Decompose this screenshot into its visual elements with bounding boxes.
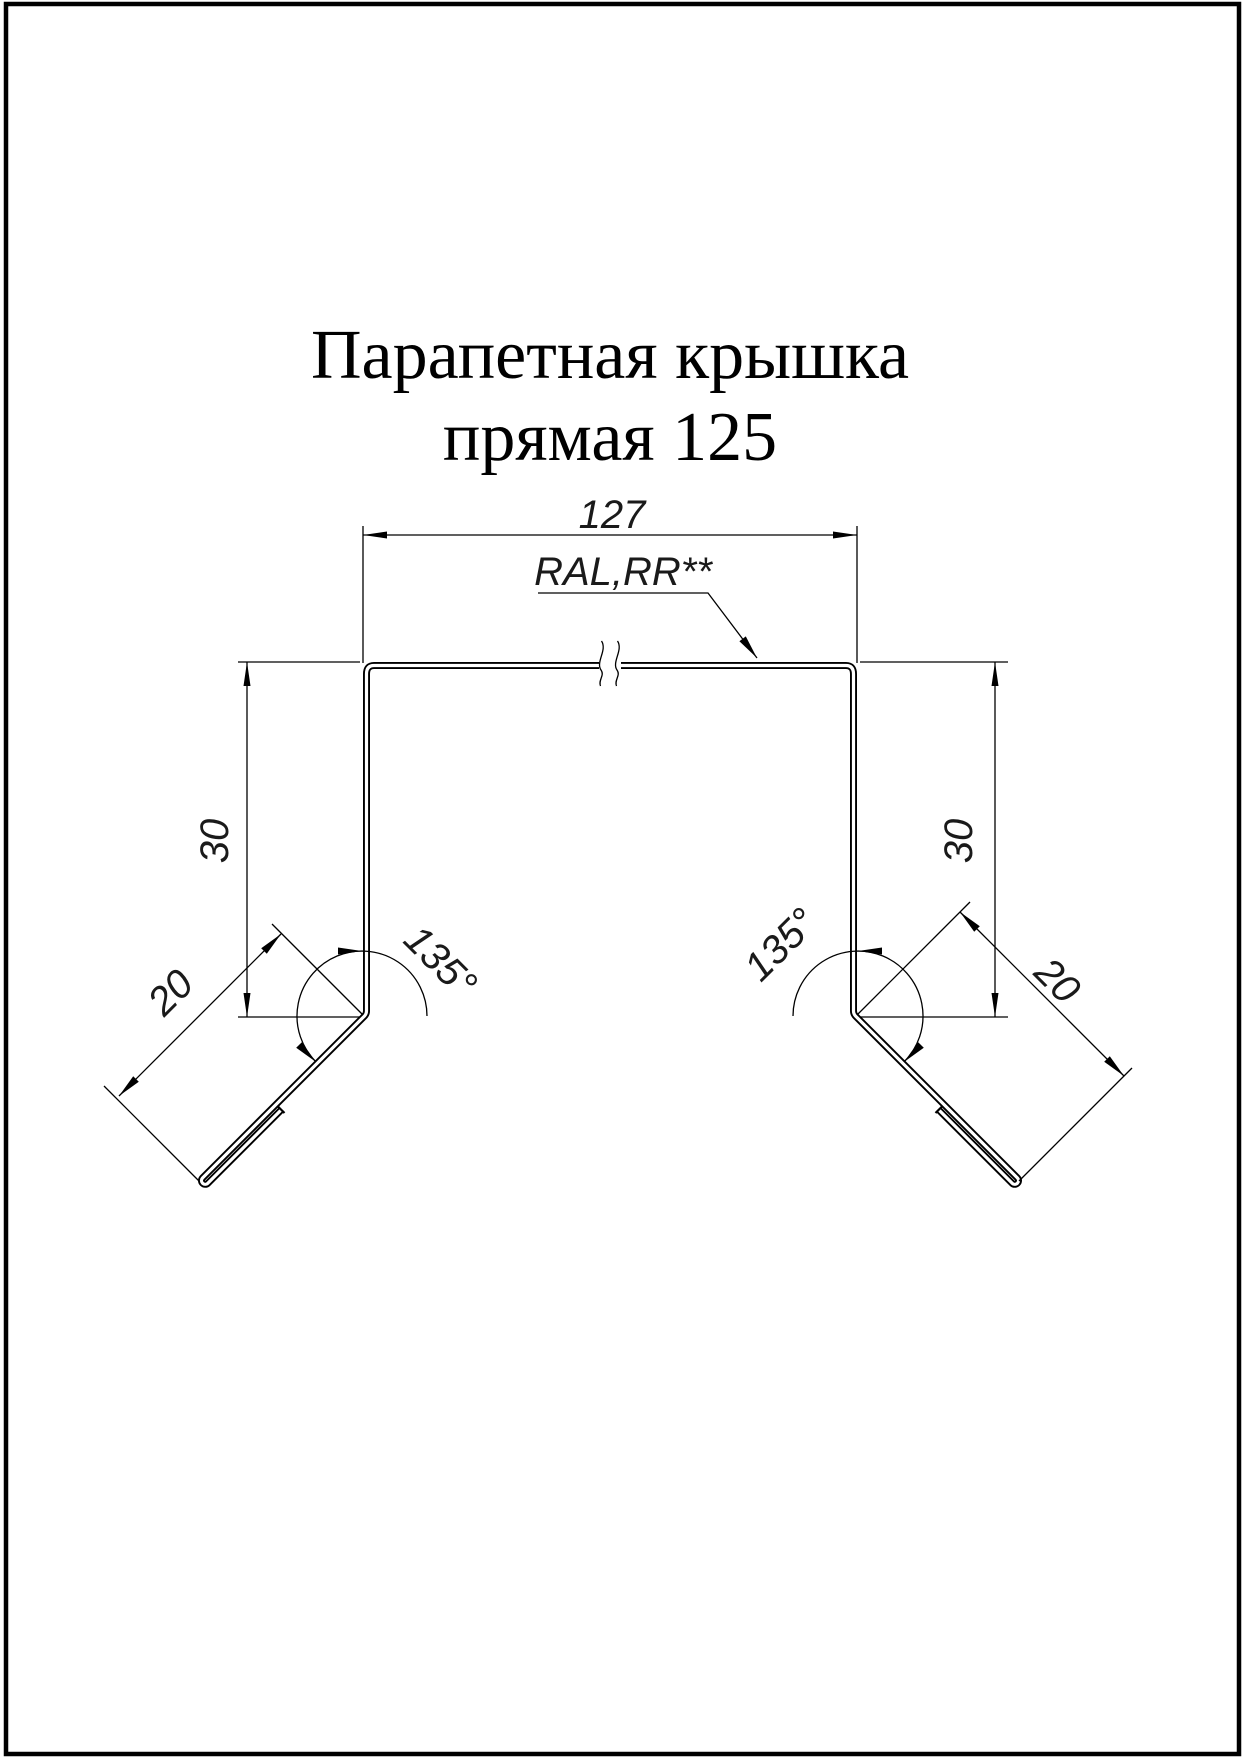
arrowhead: [244, 993, 251, 1017]
profile-right-half: [621, 666, 1019, 1185]
page-border: [6, 4, 1239, 1754]
dimension-height-right-30: 30: [860, 662, 1008, 1017]
dimension-angle-right-label: 135°: [736, 900, 826, 990]
extension-line: [104, 1086, 199, 1181]
break-symbol: [600, 641, 620, 686]
arrowhead: [858, 948, 882, 955]
arrowhead: [296, 1042, 316, 1062]
arrowhead: [338, 948, 362, 955]
dimension-angle-left-label: 135°: [395, 917, 485, 1007]
dimension-height-right-label: 30: [937, 819, 981, 864]
dimension-height-left-30: 30: [193, 662, 360, 1017]
break-curve-1: [600, 641, 604, 686]
material-leader: RAL,RR**: [534, 550, 757, 658]
technical-drawing: Парапетная крышка прямая 125 127: [0, 0, 1245, 1758]
break-curve-2: [616, 641, 620, 686]
dimension-flange-left-label: 20: [139, 962, 202, 1025]
extension-line: [857, 902, 970, 1015]
arrowhead: [1104, 1056, 1124, 1076]
arrowhead: [739, 636, 757, 658]
dimension-line: [119, 934, 281, 1096]
dimension-height-left-label: 30: [193, 819, 237, 864]
arrowhead: [960, 912, 980, 932]
profile-left-half: [201, 666, 599, 1185]
arrowhead: [992, 993, 999, 1017]
material-label: RAL,RR**: [534, 550, 713, 594]
dimension-flange-right-label: 20: [1025, 949, 1088, 1012]
profile-right-core: [621, 666, 1019, 1185]
profile-left-core: [201, 666, 599, 1185]
dimension-angle-left-135: 135°: [296, 917, 485, 1062]
dimension-angle-right-135: 135°: [736, 900, 924, 1062]
arrowhead: [119, 1076, 139, 1096]
profile-left-outline: [201, 666, 599, 1185]
leader-line: [538, 593, 757, 658]
profile-right-outline: [621, 666, 1019, 1185]
arrowhead: [261, 934, 281, 954]
extension-line: [1019, 1068, 1132, 1181]
arrowhead: [833, 532, 857, 539]
arrowhead: [363, 532, 387, 539]
arrowhead: [992, 662, 999, 686]
page-title-line1: Парапетная крышка: [311, 317, 909, 394]
drawing-sheet: Парапетная крышка прямая 125 127: [0, 0, 1245, 1758]
dimension-width-label: 127: [579, 493, 647, 537]
arrowhead: [904, 1042, 924, 1062]
page-title-line2: прямая 125: [443, 399, 777, 476]
arrowhead: [244, 662, 251, 686]
